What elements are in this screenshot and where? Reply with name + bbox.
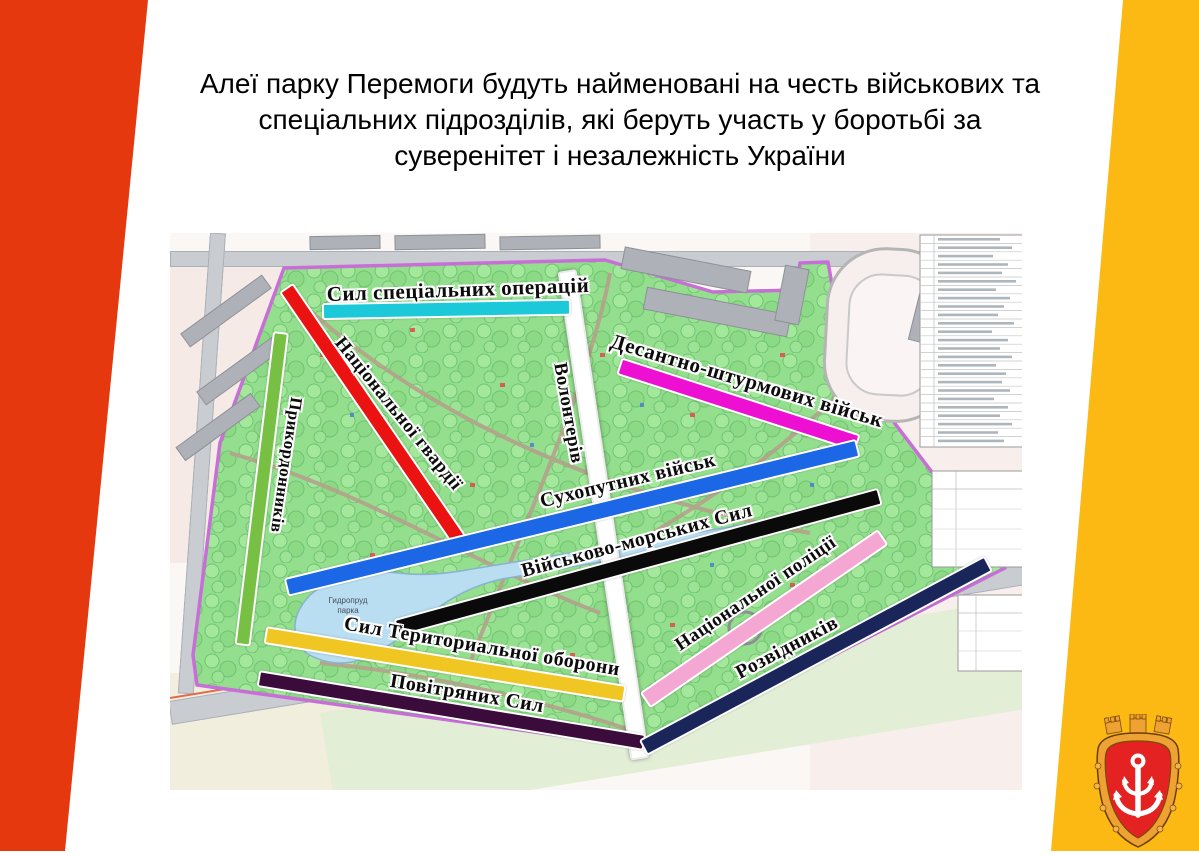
park-map-image: Гидропруд парка <box>170 233 1022 790</box>
title-line-2: спеціальних підрозділів, які беруть учас… <box>150 102 1090 138</box>
odesa-coat-of-arms <box>1086 714 1190 851</box>
title-line-3: суверенітет і незалежність України <box>150 138 1090 174</box>
legend-table <box>920 235 1022 671</box>
left-accent-band <box>0 0 150 851</box>
lake-label-line1: Гидропруд <box>328 596 367 605</box>
slide: { "slide": { "title_lines": [ "Алеї парк… <box>0 0 1199 851</box>
slide-title: Алеї парку Перемоги будуть найменовані н… <box>150 66 1090 174</box>
title-line-1: Алеї парку Перемоги будуть найменовані н… <box>150 66 1090 102</box>
emblem-crown <box>1104 714 1171 734</box>
